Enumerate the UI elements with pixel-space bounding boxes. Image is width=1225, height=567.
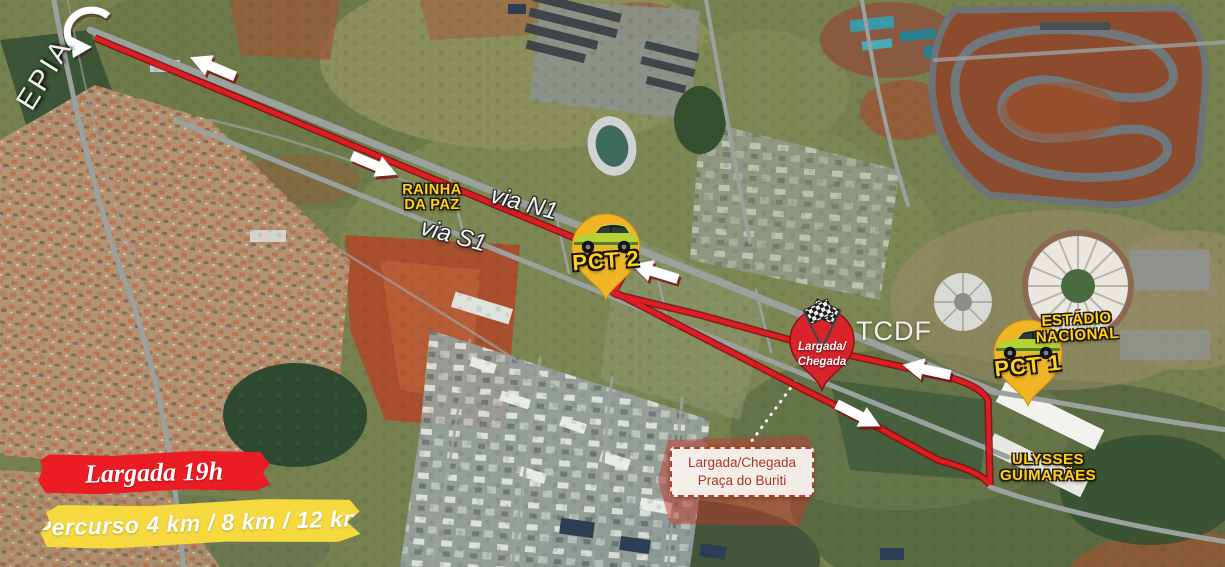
ulysses-line1: ULYSSES (1012, 451, 1084, 468)
pct2-label: PCT 2 (565, 245, 647, 277)
start-finish-line2: Chegada (798, 356, 847, 368)
place-label-rainha-da-paz: RAINHA DA PAZ (396, 183, 468, 213)
race-course-map: EPIA RAINHA DA PAZ via N1 via S1 PCT 2 P… (0, 0, 1225, 567)
start-finish-line1: Largada/ (798, 341, 846, 353)
callout-line1: Largada/Chegada (688, 455, 796, 470)
start-finish-pin-label: Largada/ Chegada (786, 340, 858, 370)
callout-line2: Praça do Buriti (698, 473, 787, 488)
place-label-tcdf: TCDF (856, 316, 932, 347)
callout-connector-dotted-line (748, 382, 795, 446)
start-time-banner: Largada 19h (38, 449, 271, 495)
rainha-line2: DA PAZ (404, 197, 459, 213)
start-finish-callout: Largada/Chegada Praça do Buriti (670, 447, 814, 497)
route-direction-arrows (186, 47, 955, 439)
ulysses-line2: GUIMARÃES (1000, 467, 1096, 484)
place-label-ulysses-guimaraes: ULYSSES GUIMARÃES (1000, 452, 1096, 484)
place-label-estadio-nacional: ESTÁDIO NACIONAL (1031, 310, 1123, 346)
rainha-line1: RAINHA (402, 182, 461, 198)
